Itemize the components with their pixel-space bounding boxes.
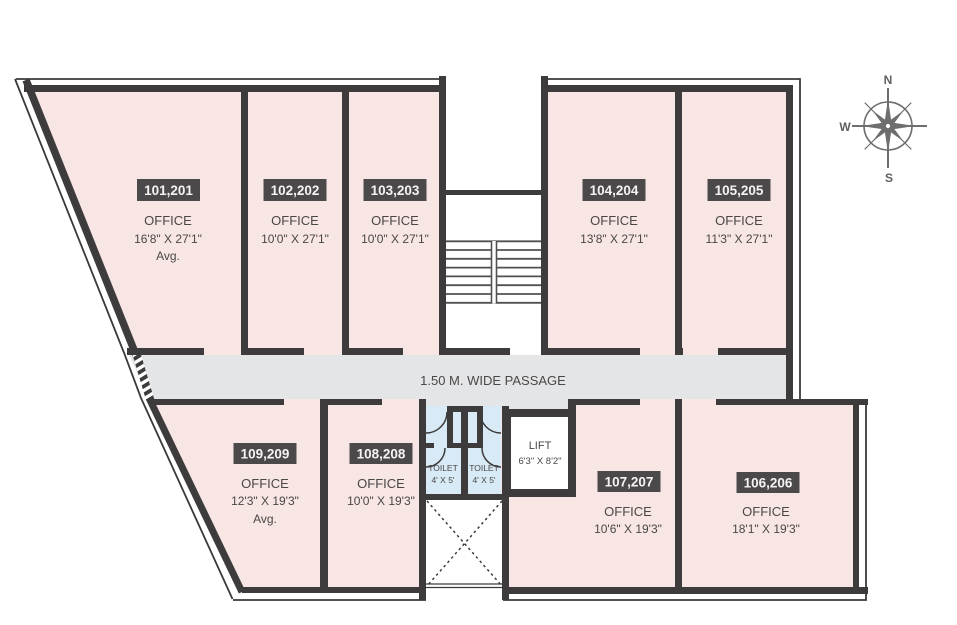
svg-text:LIFT: LIFT [529, 440, 552, 452]
svg-text:N: N [884, 73, 893, 87]
svg-text:101,201: 101,201 [144, 183, 193, 198]
svg-text:S: S [885, 171, 893, 185]
svg-text:104,204: 104,204 [590, 183, 639, 198]
svg-text:11'3" X 27'1": 11'3" X 27'1" [706, 232, 773, 246]
svg-text:TOILET: TOILET [428, 463, 458, 473]
svg-text:103,203: 103,203 [371, 183, 420, 198]
svg-text:OFFICE: OFFICE [371, 213, 419, 228]
svg-text:4' X 5': 4' X 5' [472, 475, 495, 485]
svg-text:4' X 5': 4' X 5' [431, 475, 454, 485]
svg-text:108,208: 108,208 [357, 447, 406, 462]
svg-text:OFFICE: OFFICE [357, 476, 405, 491]
svg-text:10'0" X 27'1": 10'0" X 27'1" [261, 232, 329, 246]
svg-text:OFFICE: OFFICE [742, 504, 790, 519]
svg-text:102,202: 102,202 [271, 183, 320, 198]
svg-text:18'1" X 19'3": 18'1" X 19'3" [732, 522, 800, 536]
svg-text:OFFICE: OFFICE [271, 213, 319, 228]
svg-text:OFFICE: OFFICE [604, 504, 652, 519]
svg-text:TOILET: TOILET [469, 463, 499, 473]
svg-text:16'8" X 27'1": 16'8" X 27'1" [134, 232, 202, 246]
svg-text:107,207: 107,207 [605, 475, 654, 490]
svg-text:1.50 M. WIDE PASSAGE: 1.50 M. WIDE PASSAGE [420, 373, 566, 388]
svg-text:10'0" X 19'3": 10'0" X 19'3" [347, 494, 415, 508]
svg-text:6'3" X 8'2": 6'3" X 8'2" [518, 456, 561, 467]
svg-text:10'0" X 27'1": 10'0" X 27'1" [361, 232, 429, 246]
svg-text:106,206: 106,206 [744, 476, 793, 491]
svg-text:13'8" X 27'1": 13'8" X 27'1" [580, 232, 648, 246]
svg-text:Avg.: Avg. [253, 512, 277, 526]
svg-text:Avg.: Avg. [156, 249, 180, 263]
svg-text:OFFICE: OFFICE [241, 476, 289, 491]
svg-text:OFFICE: OFFICE [715, 213, 763, 228]
svg-text:10'6" X 19'3": 10'6" X 19'3" [594, 522, 662, 536]
svg-text:W: W [839, 120, 851, 134]
svg-text:OFFICE: OFFICE [590, 213, 638, 228]
svg-text:12'3" X 19'3": 12'3" X 19'3" [231, 494, 299, 508]
svg-text:OFFICE: OFFICE [144, 213, 192, 228]
svg-text:105,205: 105,205 [715, 183, 764, 198]
svg-text:109,209: 109,209 [241, 447, 290, 462]
